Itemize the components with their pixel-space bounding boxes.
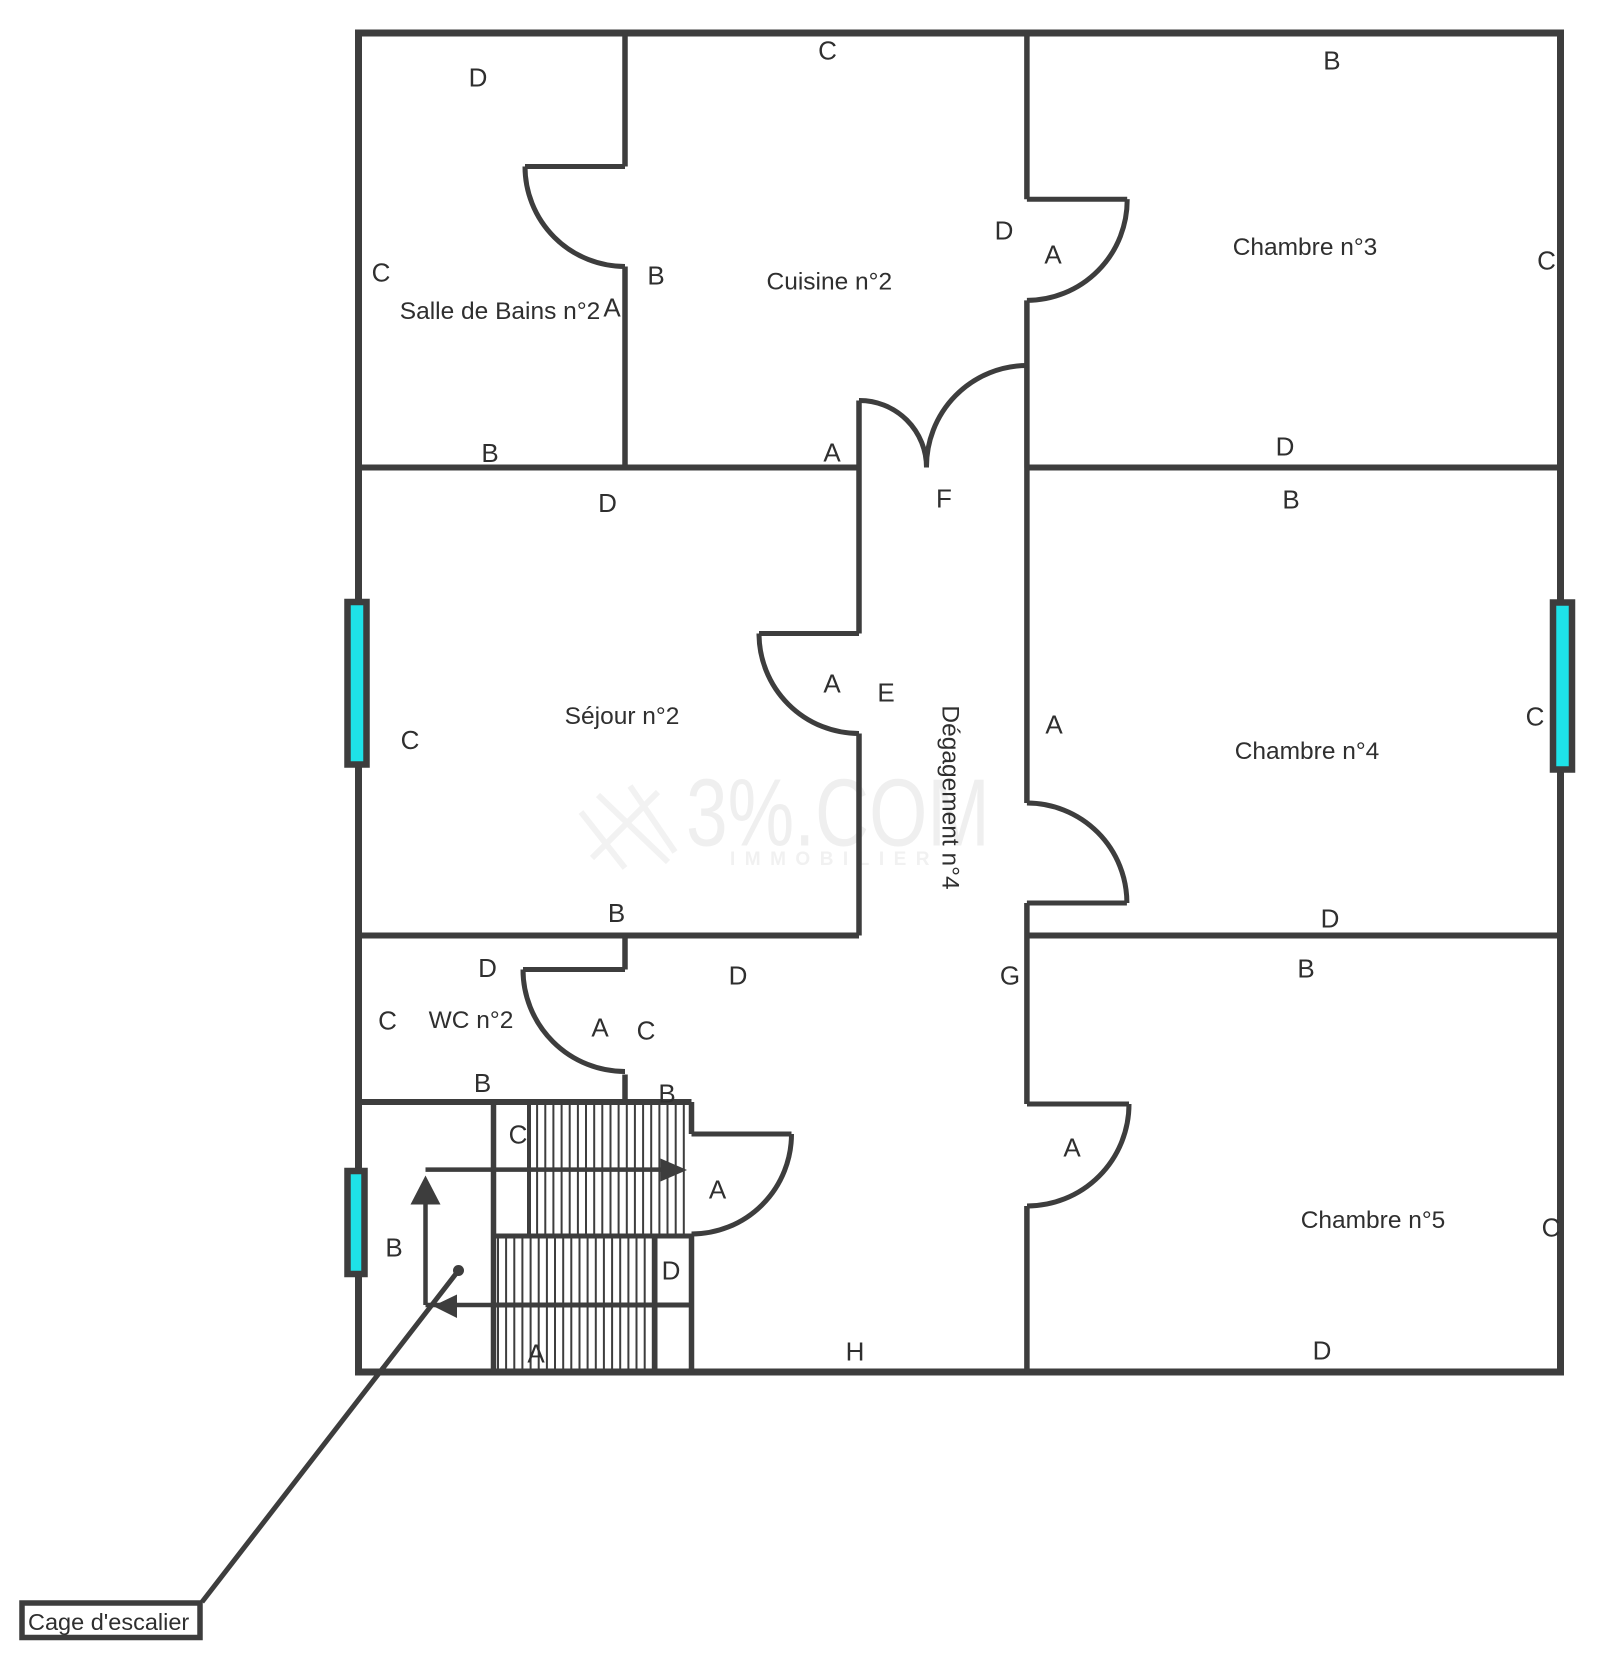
svg-text:C: C (401, 725, 420, 755)
svg-text:WC n°2: WC n°2 (429, 1007, 514, 1034)
svg-text:A: A (603, 293, 621, 323)
svg-text:D: D (662, 1256, 681, 1286)
svg-text:C: C (637, 1016, 656, 1046)
svg-text:A: A (1045, 710, 1063, 740)
svg-text:E: E (877, 678, 894, 708)
svg-text:Salle de Bains n°2: Salle de Bains n°2 (400, 298, 601, 325)
svg-text:B: B (1323, 46, 1340, 76)
svg-text:A: A (823, 669, 841, 699)
svg-text:A: A (527, 1339, 545, 1369)
svg-text:D: D (478, 953, 497, 983)
svg-text:F: F (936, 484, 952, 514)
svg-text:IMMOBILIER: IMMOBILIER (730, 849, 939, 870)
svg-text:D: D (1276, 432, 1295, 462)
svg-text:B: B (385, 1233, 402, 1263)
svg-text:A: A (823, 438, 841, 468)
svg-text:H: H (846, 1337, 865, 1367)
svg-text:A: A (709, 1175, 727, 1205)
svg-text:D: D (1321, 904, 1340, 934)
svg-text:D: D (995, 216, 1014, 246)
svg-text:B: B (608, 898, 625, 928)
svg-text:D: D (1313, 1336, 1332, 1366)
svg-text:C: C (378, 1006, 397, 1036)
svg-text:C: C (1542, 1213, 1561, 1243)
svg-text:Cage d'escalier: Cage d'escalier (28, 1609, 189, 1635)
svg-text:Dégagement n°4: Dégagement n°4 (937, 705, 964, 889)
svg-text:A: A (1063, 1133, 1081, 1163)
svg-text:C: C (1537, 246, 1556, 276)
svg-text:B: B (474, 1068, 491, 1098)
svg-text:D: D (729, 961, 748, 991)
svg-text:B: B (658, 1079, 675, 1109)
svg-text:Séjour n°2: Séjour n°2 (565, 703, 680, 730)
svg-text:C: C (372, 258, 391, 288)
svg-text:C: C (1526, 702, 1545, 732)
svg-text:B: B (647, 261, 664, 291)
svg-text:A: A (591, 1013, 609, 1043)
svg-text:D: D (469, 63, 488, 93)
svg-text:B: B (1282, 485, 1299, 515)
svg-text:B: B (1297, 954, 1314, 984)
svg-text:Chambre n°4: Chambre n°4 (1235, 738, 1380, 765)
svg-text:B: B (481, 438, 498, 468)
svg-text:Chambre n°5: Chambre n°5 (1301, 1207, 1446, 1234)
svg-text:C: C (818, 36, 837, 66)
svg-text:A: A (1044, 240, 1062, 270)
svg-text:D: D (598, 488, 617, 518)
svg-text:Cuisine n°2: Cuisine n°2 (767, 269, 893, 296)
svg-text:G: G (1000, 961, 1020, 991)
svg-text:Chambre n°3: Chambre n°3 (1233, 234, 1378, 261)
svg-text:C: C (509, 1120, 528, 1150)
